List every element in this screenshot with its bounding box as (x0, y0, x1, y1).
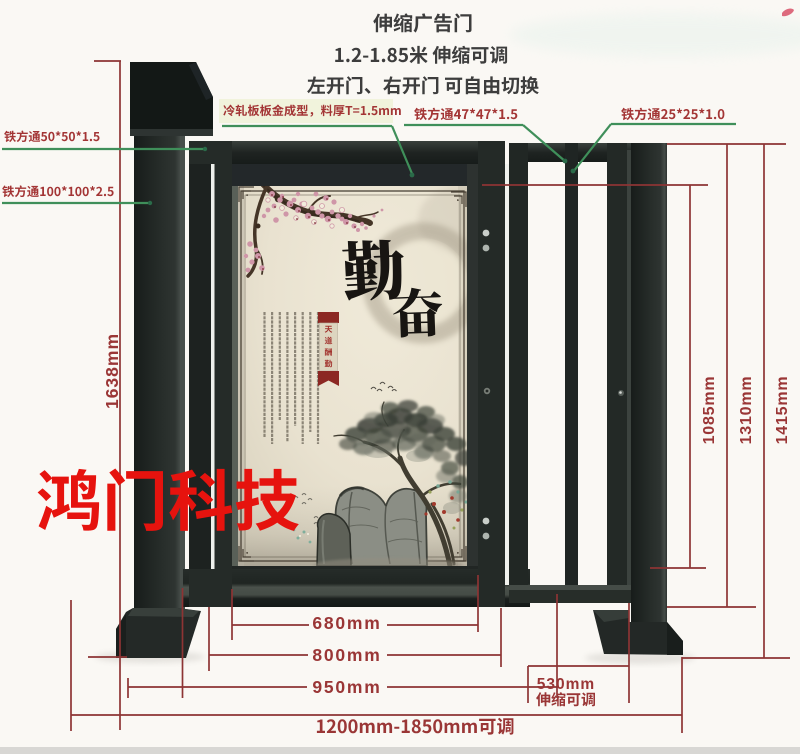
svg-text:1415mm: 1415mm (774, 376, 791, 445)
svg-text:1310mm: 1310mm (738, 376, 755, 445)
svg-text:680mm: 680mm (312, 613, 381, 633)
svg-text:800mm: 800mm (312, 645, 381, 665)
svg-text:1085mm: 1085mm (701, 376, 718, 445)
svg-text:530mm: 530mm (537, 676, 595, 693)
svg-text:1638mm: 1638mm (102, 333, 122, 409)
svg-text:950mm: 950mm (312, 677, 381, 697)
